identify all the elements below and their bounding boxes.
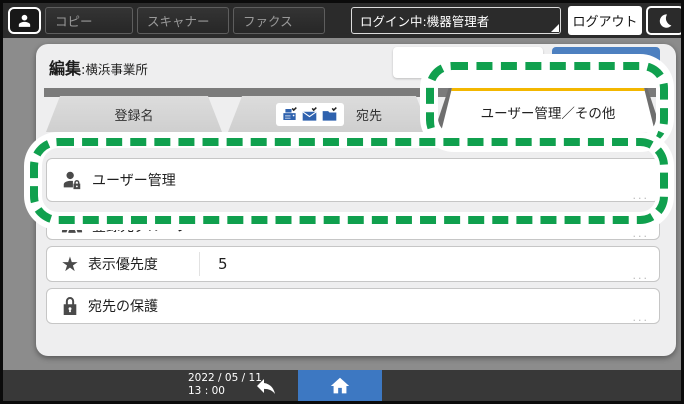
row-user-management[interactable]: ユーザー管理 ... <box>46 158 660 202</box>
top-bar: コピー スキャナー ファクス ログイン中:機器管理者 ログアウト <box>3 3 681 38</box>
copier-touch-screen: コピー スキャナー ファクス ログイン中:機器管理者 ログアウト 編集:横浜事業… <box>0 0 684 404</box>
row-label: 宛先の保護 <box>88 296 158 316</box>
logged-in-user-button[interactable] <box>8 7 41 34</box>
user-lock-icon <box>61 169 83 191</box>
page-title: 編集:横浜事業所 <box>49 55 148 79</box>
tab-registered-name[interactable]: 登録名 <box>46 96 222 132</box>
home-button[interactable] <box>298 370 382 401</box>
bottom-bar: 2022 / 05 / 11 13 : 00 <box>3 370 681 401</box>
app-button-label: ファクス <box>243 11 293 30</box>
person-icon <box>16 12 33 29</box>
ok-button-label: OK <box>597 55 616 70</box>
dropdown-corner-icon <box>551 24 559 32</box>
row-destination-protection[interactable]: 宛先の保護 ... <box>46 288 660 324</box>
tab-user-management-face: ユーザー管理／その他 <box>441 84 655 132</box>
folder-icon <box>321 107 338 122</box>
column-divider <box>199 252 200 276</box>
logout-button-label: ログアウト <box>572 11 637 30</box>
back-button[interactable] <box>246 371 286 400</box>
more-dots: ... <box>633 227 650 240</box>
active-tab-stripe <box>441 84 655 91</box>
row-label: ユーザー管理 <box>92 170 176 190</box>
page-title-label: 編集 <box>49 59 81 78</box>
fax-icon <box>281 107 298 122</box>
cancel-button[interactable]: 取消 <box>393 47 543 78</box>
more-dots: ... <box>633 269 650 282</box>
ok-button[interactable]: OK <box>552 47 660 78</box>
display-priority-value: 5 <box>218 255 228 273</box>
row-label: 登録先グループ <box>92 216 189 236</box>
edit-entry-panel: 編集:横浜事業所 取消 OK 登録名 宛先 <box>36 44 676 356</box>
tab-label: ユーザー管理／その他 <box>481 95 616 122</box>
tab-destinations[interactable]: 宛先 <box>228 96 430 132</box>
lock-icon <box>61 296 79 316</box>
app-button-label: コピー <box>55 11 93 30</box>
tab-user-management[interactable]: ユーザー管理／その他 <box>434 84 662 132</box>
star-icon: ★ <box>61 254 79 274</box>
page-title-entry-name: 横浜事業所 <box>85 62 148 77</box>
app-button-label: スキャナー <box>147 11 210 30</box>
row-label: 表示優先度 <box>88 254 158 274</box>
app-button-fax[interactable]: ファクス <box>233 7 325 34</box>
login-status-dropdown[interactable]: ログイン中:機器管理者 <box>351 7 561 34</box>
cancel-button-label: 取消 <box>455 53 481 72</box>
app-button-copy[interactable]: コピー <box>45 7 133 34</box>
moon-icon <box>657 13 673 29</box>
row-registration-groups[interactable]: 登録先グループ ... <box>46 212 660 240</box>
more-dots: ... <box>633 189 650 202</box>
row-display-priority[interactable]: ★ 表示優先度 5 ... <box>46 246 660 282</box>
tab-label: 登録名 <box>114 105 153 124</box>
energy-saver-button[interactable] <box>646 6 684 35</box>
groups-icon <box>61 215 83 237</box>
mail-icon <box>301 107 318 122</box>
home-icon <box>329 375 351 397</box>
back-arrow-icon <box>254 374 278 398</box>
destination-type-icons <box>276 103 344 126</box>
tab-label: 宛先 <box>356 105 382 124</box>
more-dots: ... <box>633 311 650 324</box>
logout-button[interactable]: ログアウト <box>568 6 642 35</box>
app-button-scanner[interactable]: スキャナー <box>137 7 229 34</box>
login-status-text: ログイン中:機器管理者 <box>360 11 489 30</box>
